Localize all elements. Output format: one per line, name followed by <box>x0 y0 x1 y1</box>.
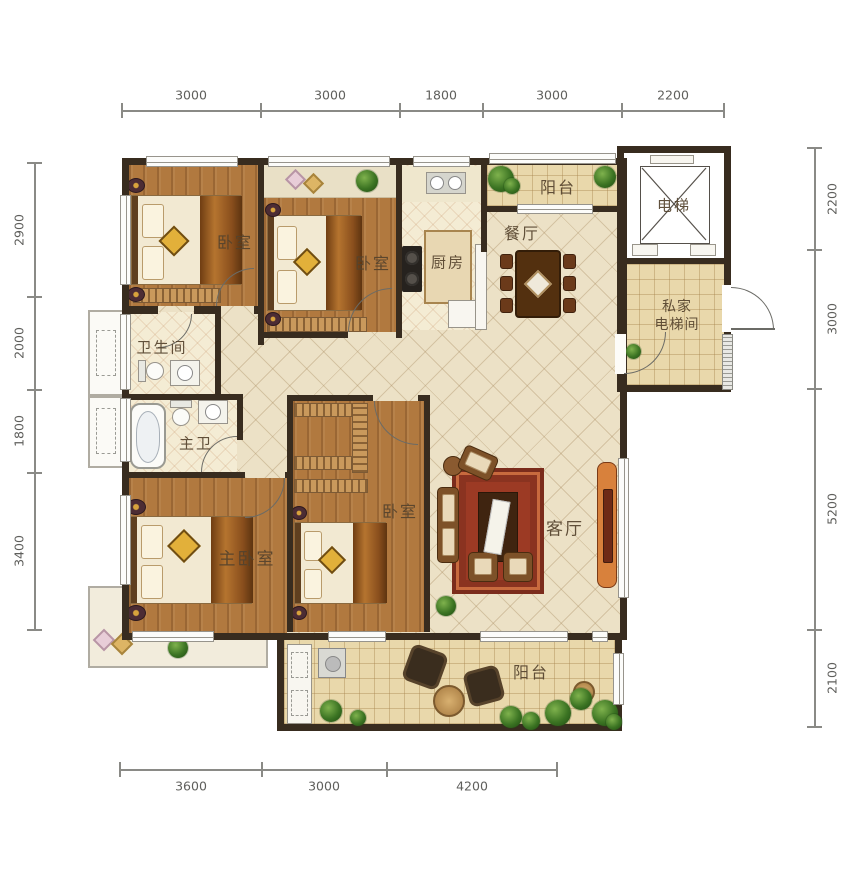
plant <box>436 596 456 616</box>
nightstand <box>291 506 307 520</box>
wall <box>122 306 158 314</box>
dim-tick <box>27 296 42 298</box>
nightstand <box>291 606 307 620</box>
washing-machine <box>318 648 346 678</box>
window <box>120 314 131 390</box>
closet-shelf <box>294 479 368 493</box>
dim-tick <box>556 762 558 777</box>
dim-label-right-1: 2200 <box>825 183 840 215</box>
window <box>328 631 386 642</box>
nightstand <box>127 178 145 193</box>
dim-label-right-2: 3000 <box>825 303 840 335</box>
plant <box>522 712 540 730</box>
dining-chair <box>500 298 513 313</box>
wall <box>254 306 264 314</box>
window <box>268 156 390 167</box>
nightstand <box>126 605 146 621</box>
room-label-bedroom1: 卧室 <box>217 229 253 253</box>
plant <box>350 710 366 726</box>
dim-label-left-3: 1800 <box>12 415 27 447</box>
plant <box>594 166 616 188</box>
dim-tick <box>260 103 262 118</box>
dim-tick <box>27 389 42 391</box>
sofa <box>437 487 459 563</box>
round-table <box>433 685 465 717</box>
entry-door-arc <box>731 287 774 330</box>
pillow <box>304 569 322 599</box>
wall <box>237 394 243 440</box>
pillow <box>142 246 164 280</box>
window <box>413 156 470 167</box>
dim-label-top-3: 1800 <box>425 88 457 103</box>
dim-tick <box>261 762 263 777</box>
toilet <box>172 408 190 426</box>
dim-label-bottom-3: 4200 <box>456 779 488 794</box>
sofa-cushion <box>442 494 455 522</box>
dim-tick <box>807 249 822 251</box>
tv-screen <box>603 489 613 563</box>
dim-tick <box>807 629 822 631</box>
sofa-cushion <box>442 528 455 556</box>
sofa-cushion <box>474 558 492 575</box>
elevator-door-jamb <box>632 244 658 256</box>
dining-chair <box>563 254 576 269</box>
stove-burner <box>405 251 419 265</box>
dim-label-left-1: 2900 <box>12 214 27 246</box>
bed-headboard <box>131 517 137 603</box>
dim-tick <box>27 162 42 164</box>
room-label-bedroom2: 卧室 <box>355 250 391 274</box>
cabinet-dashed-frame <box>291 652 308 678</box>
dining-chair <box>563 298 576 313</box>
pillow <box>277 270 297 304</box>
dim-label-left-4: 3400 <box>12 535 27 567</box>
balcony-railing <box>489 153 616 164</box>
pillow <box>141 525 163 559</box>
nightstand <box>265 312 281 326</box>
closet-shelf <box>294 456 352 470</box>
dim-tick <box>27 472 42 474</box>
room-label-master-bath: 主卫 <box>179 433 213 454</box>
armchair <box>503 552 533 582</box>
dining-chair <box>500 254 513 269</box>
dim-line-left <box>34 163 36 630</box>
bed-blanket <box>353 523 387 603</box>
plant <box>606 714 622 730</box>
armchair <box>468 552 498 582</box>
wall <box>617 146 731 153</box>
room-label-master-bedroom: 主卧室 <box>219 545 276 570</box>
room-label-dining: 餐厅 <box>504 220 540 244</box>
bathtub <box>130 403 166 469</box>
window <box>120 195 131 285</box>
dim-tick <box>399 103 401 118</box>
window <box>146 156 238 167</box>
dim-tick <box>621 103 623 118</box>
bed-headboard <box>268 216 274 310</box>
wall <box>258 158 264 345</box>
stove-burner <box>405 272 419 286</box>
room-label-balcony-top: 阳台 <box>540 174 576 198</box>
wall <box>617 385 731 392</box>
dim-label-left-2: 2000 <box>12 327 27 359</box>
window <box>120 495 131 585</box>
wall <box>424 401 430 632</box>
window <box>120 398 131 462</box>
sink-basin <box>430 176 444 190</box>
room-label-bedroom3: 卧室 <box>382 498 418 522</box>
floor-plan: 卧室 卧室 厨房 阳台 餐厅 电梯 私家 电梯间 卫生间 主卫 主卧室 卧室 客… <box>0 0 850 884</box>
wall <box>481 158 487 252</box>
plant <box>570 688 592 710</box>
washer-door <box>325 656 341 672</box>
wall <box>194 306 216 314</box>
dim-tick <box>482 103 484 118</box>
dim-label-right-4: 2100 <box>825 662 840 694</box>
elevator-door-jamb <box>690 244 716 256</box>
dim-tick <box>386 762 388 777</box>
window <box>618 458 629 598</box>
bed-headboard <box>132 196 138 284</box>
wall <box>396 158 402 338</box>
window <box>132 631 214 642</box>
dim-label-bottom-1: 3600 <box>175 779 207 794</box>
dim-label-top-1: 3000 <box>175 88 207 103</box>
room-label-bathroom: 卫生间 <box>136 337 187 358</box>
room-label-kitchen: 厨房 <box>431 252 465 273</box>
room-label-private-elevator-line1: 私家 <box>662 296 692 316</box>
window <box>613 653 624 705</box>
wall <box>287 395 293 632</box>
wall <box>277 633 284 731</box>
wardrobe <box>133 288 221 303</box>
sofa-cushion <box>509 558 527 575</box>
dim-label-bottom-2: 3000 <box>308 779 340 794</box>
wall <box>122 394 243 400</box>
window <box>592 631 608 642</box>
pillow <box>142 204 164 238</box>
dim-label-top-5: 2200 <box>657 88 689 103</box>
plant <box>500 706 522 728</box>
nightstand <box>265 203 281 217</box>
dim-tick <box>807 147 822 149</box>
bed-headboard <box>295 523 301 603</box>
dim-label-top-4: 3000 <box>536 88 568 103</box>
plant <box>545 700 571 726</box>
tv-cabinet <box>597 462 617 588</box>
bay-window-dashed-frame <box>96 408 116 454</box>
dim-label-top-2: 3000 <box>314 88 346 103</box>
pillow <box>304 531 322 561</box>
wardrobe <box>352 403 368 473</box>
dining-chair <box>563 276 576 291</box>
cabinet-dashed-frame <box>291 690 308 716</box>
toilet <box>146 362 164 380</box>
room-label-living: 客厅 <box>546 515 584 540</box>
sink-basin <box>177 365 193 381</box>
room-label-balcony-bottom: 阳台 <box>513 659 549 683</box>
plant <box>320 700 342 722</box>
room-label-elevator: 电梯 <box>657 195 691 216</box>
nightstand <box>127 287 145 302</box>
dim-line-bottom <box>120 769 557 771</box>
dim-tick <box>807 726 822 728</box>
dim-tick <box>121 103 123 118</box>
wall <box>624 258 724 264</box>
elevator-vent <box>650 155 694 164</box>
sink-basin <box>205 404 221 420</box>
plant <box>504 178 520 194</box>
sliding-door <box>517 204 593 214</box>
wall <box>293 395 373 401</box>
louvre-window <box>722 334 733 390</box>
sliding-door <box>480 631 568 642</box>
bathtub-basin <box>136 411 160 463</box>
dim-line-right <box>814 148 816 727</box>
dim-tick <box>807 388 822 390</box>
dim-tick <box>27 629 42 631</box>
entry-door-leaf <box>731 328 775 330</box>
pillow <box>141 565 163 599</box>
dim-label-right-3: 5200 <box>825 493 840 525</box>
toilet-tank <box>138 360 146 382</box>
room-label-private-elevator-line2: 电梯间 <box>655 314 700 334</box>
bay-window-dashed-frame <box>96 330 116 376</box>
dim-line-top <box>122 110 724 112</box>
wall <box>215 306 221 394</box>
wall <box>122 472 245 478</box>
plant <box>356 170 378 192</box>
wall <box>264 332 348 338</box>
wall <box>277 724 622 731</box>
dim-tick <box>723 103 725 118</box>
kitchen-cabinet <box>475 244 487 330</box>
pillow <box>277 226 297 260</box>
sink-basin <box>448 176 462 190</box>
toilet-tank <box>170 400 192 408</box>
sofa-cushion <box>464 451 492 474</box>
dining-chair <box>500 276 513 291</box>
dim-tick <box>119 762 121 777</box>
